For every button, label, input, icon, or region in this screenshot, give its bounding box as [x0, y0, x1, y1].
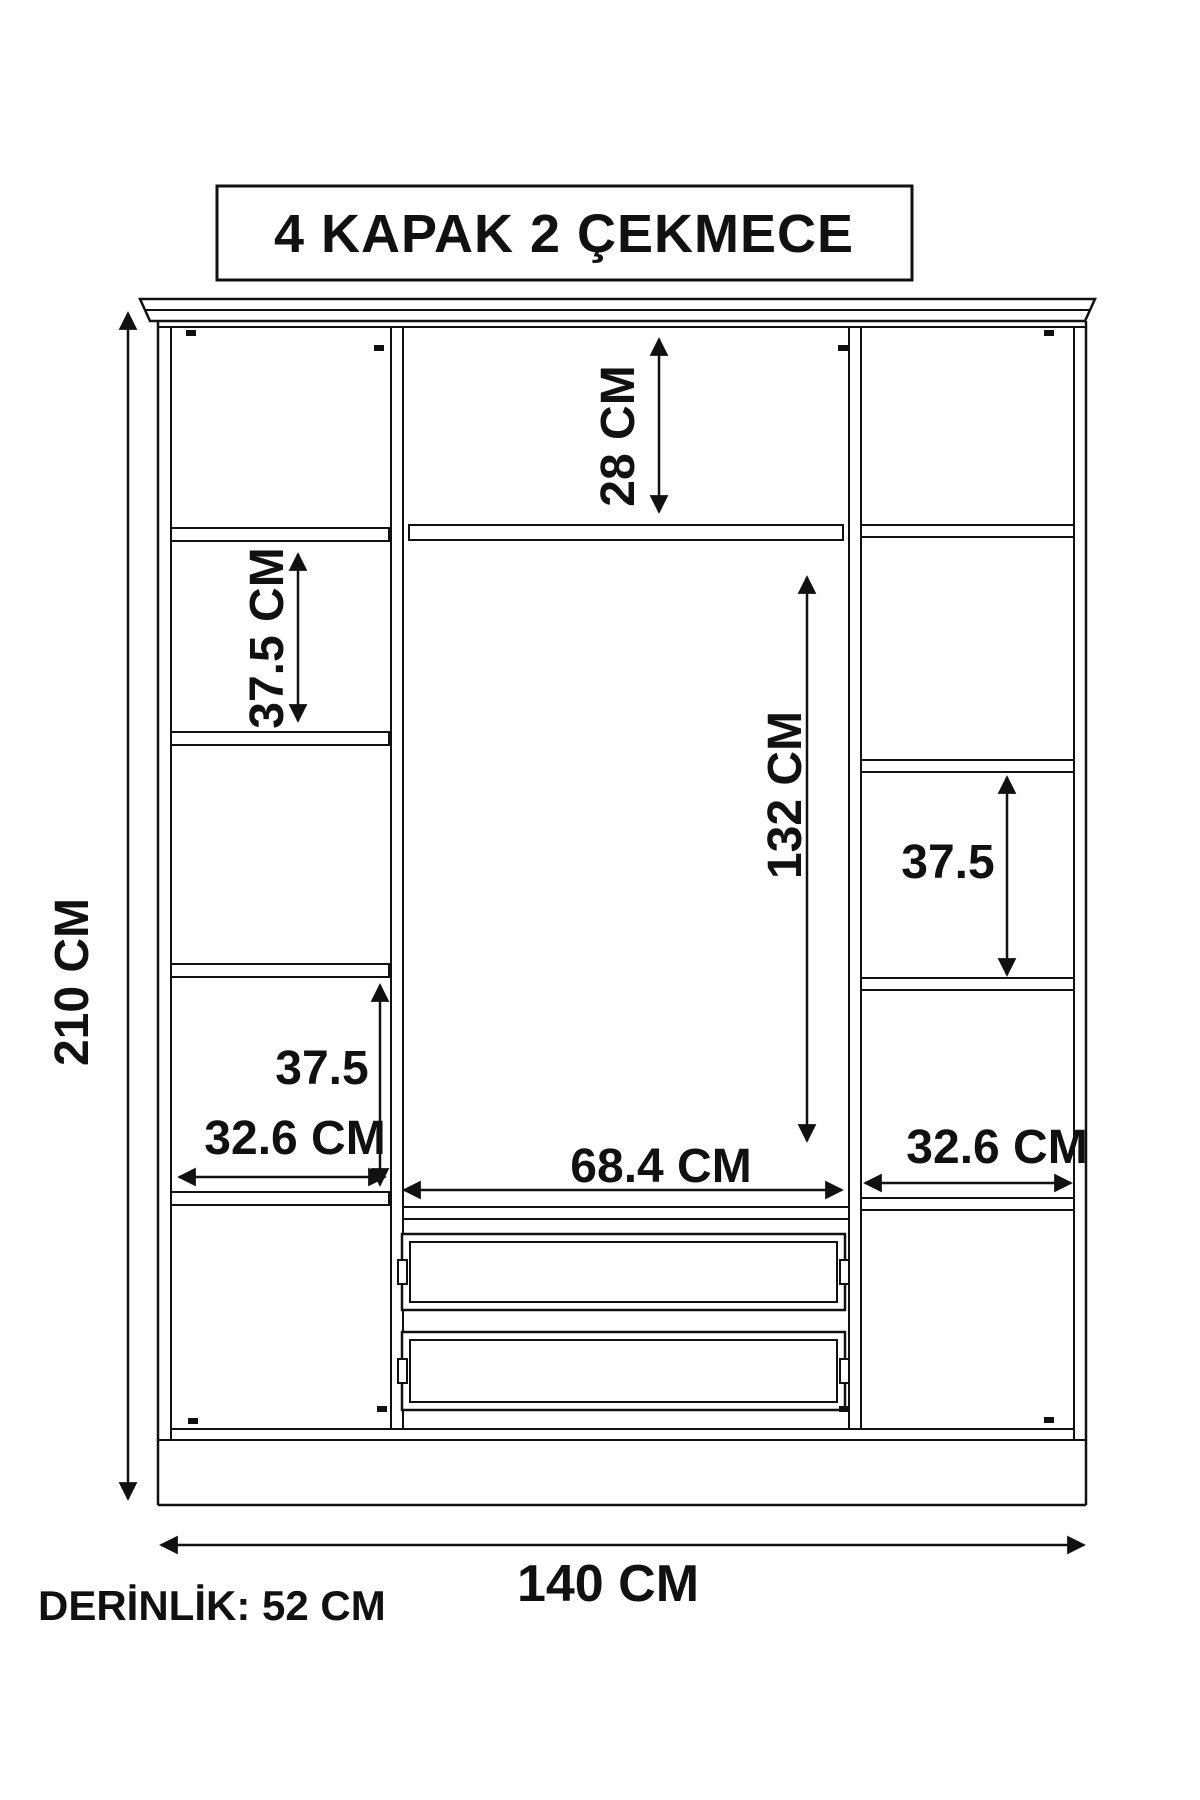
drawer-2	[398, 1332, 849, 1410]
dim-label-center-width: 68.4 CM	[570, 1140, 751, 1193]
screw-mark	[377, 1406, 387, 1412]
screw-mark	[188, 1418, 198, 1424]
base-plinth	[158, 1429, 1086, 1505]
dim-label-top-compartment: 28 CM	[592, 365, 645, 506]
drawer-1-right-slide	[840, 1260, 849, 1284]
dim-right-column-width: 32.6 CM	[865, 1121, 1088, 1183]
depth-note: DERİNLİK: 52 CM	[38, 1582, 386, 1629]
dim-label-overall-height: 210 CM	[46, 898, 99, 1066]
title-text: 4 KAPAK 2 ÇEKMECE	[274, 204, 854, 264]
drawer-2-right-slide	[840, 1359, 849, 1383]
drawer-1	[398, 1234, 849, 1310]
drawer-1-panel	[410, 1242, 837, 1302]
dim-center-column-width: 68.4 CM	[404, 1140, 842, 1193]
dim-left-upper-compartment: 37.5 CM	[241, 547, 298, 728]
title-box: 4 KAPAK 2 ÇEKMECE	[217, 186, 912, 280]
center-drawer-top-rail	[403, 1207, 849, 1219]
dim-label-left-lower: 37.5	[275, 1042, 368, 1095]
dim-label-overall-width: 140 CM	[517, 1555, 699, 1613]
dim-center-compartment: 132 CM	[759, 577, 812, 1141]
screw-mark	[374, 345, 384, 351]
cornice	[140, 299, 1095, 327]
drawer-1-left-slide	[398, 1260, 407, 1284]
screw-mark	[839, 1406, 849, 1412]
drawers	[398, 1234, 849, 1410]
screw-mark	[1044, 330, 1054, 336]
left-shelf-4	[171, 1192, 389, 1205]
left-shelf-1	[171, 528, 389, 541]
screw-mark	[186, 330, 196, 336]
drawer-2-left-slide	[398, 1359, 407, 1383]
dim-overall-height: 210 CM	[46, 313, 128, 1499]
diagram-canvas: 4 KAPAK 2 ÇEKMECE	[0, 0, 1200, 1800]
dim-label-left-upper: 37.5 CM	[241, 547, 294, 728]
wardrobe-technical-drawing: 4 KAPAK 2 ÇEKMECE	[0, 0, 1200, 1800]
dim-label-left-width: 32.6 CM	[204, 1112, 385, 1165]
dim-top-compartment: 28 CM	[592, 339, 659, 512]
center-top-shelf	[409, 525, 843, 540]
screw-mark	[1044, 1417, 1054, 1423]
dim-right-compartment: 37.5	[901, 777, 1007, 975]
drawer-2-panel	[410, 1340, 837, 1402]
screw-mark	[838, 345, 848, 351]
dim-label-right-width: 32.6 CM	[906, 1121, 1087, 1174]
dim-label-center: 132 CM	[759, 711, 812, 879]
dim-left-column-width: 32.6 CM	[179, 1112, 386, 1177]
left-shelf-2	[171, 732, 389, 745]
dim-label-right: 37.5	[901, 836, 994, 889]
left-shelf-3	[171, 964, 389, 977]
